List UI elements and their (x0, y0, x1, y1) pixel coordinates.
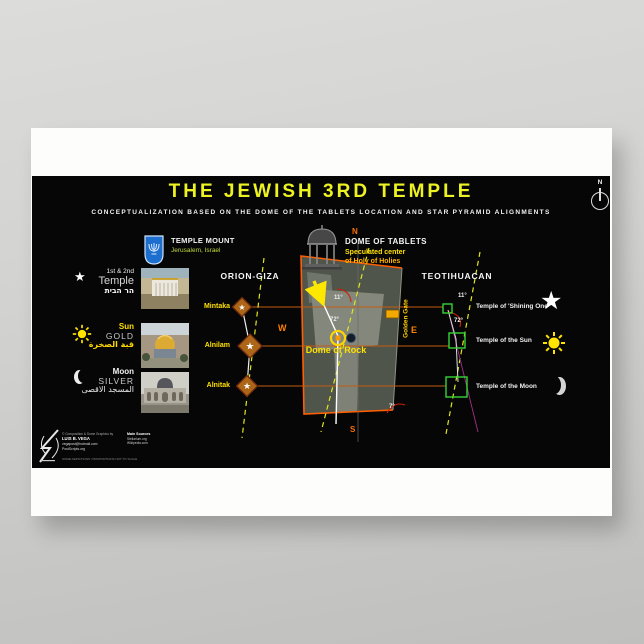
star-label-mintaka: Mintaka (190, 303, 230, 311)
compass-north-label: N (592, 179, 608, 186)
temple-of-moon-label: Temple of the Moon (476, 383, 537, 390)
credits-block: © Composition & Some Graphics by LUIS B.… (62, 432, 113, 451)
mockup-background: ★ ★ ★ (0, 0, 644, 644)
poster-title: THE JEWISH 3RD TEMPLE (32, 182, 610, 203)
poster-panel: ★ ★ ★ (32, 176, 610, 468)
angle-7-label: 7° (389, 404, 395, 411)
moon-icon (548, 376, 561, 394)
dome-of-tablets-title: DOME OF TABLETS (345, 238, 427, 247)
sources-block: Main Sources Stellarium.org Wikipedia.co… (127, 432, 150, 445)
dome-of-tablets-sub2: of Holy of Holies (345, 258, 400, 266)
teo-angle-11-label: 11° (458, 293, 467, 300)
south-label: S (350, 426, 355, 435)
star-icon: ★ (246, 342, 255, 353)
angle-11-label: 11° (334, 295, 343, 302)
al-aqsa-photo (141, 372, 189, 413)
golden-gate-marker (386, 310, 399, 318)
credits-site: PostScripts.org (62, 447, 113, 452)
star-label-alnilam: Alnilam (190, 342, 230, 350)
star-label-alnitak: Alnitak (190, 382, 230, 390)
dome-of-rock-label: Dome of Rock (290, 346, 382, 356)
sun-icon (542, 331, 566, 355)
dome-of-tablets-sub1: Speculated center (345, 249, 405, 257)
temple-model-photo (141, 268, 189, 309)
star-icon: ★ (540, 288, 562, 316)
orion-giza-title: ORION-GIZA (207, 272, 293, 281)
east-label: E (411, 326, 417, 336)
north-label: N (352, 228, 358, 237)
magenta-line (448, 310, 478, 432)
legend-row-moon: Moon SILVER المسجد الاقصى (68, 368, 134, 395)
temple-mount-title: TEMPLE MOUNT (171, 237, 235, 245)
temple-mount-subtitle: Jerusalem, Israel (171, 247, 221, 254)
west-label: W (278, 324, 287, 334)
golden-gate-label: Golden Gate (402, 291, 409, 347)
legend-row-temple: 1st & 2nd Temple הר הבית (68, 268, 134, 295)
dome-of-chain-marker (347, 334, 356, 343)
star-icon: ★ (243, 382, 251, 392)
israel-emblem-icon (144, 235, 164, 265)
source-item: Wikipedia.com (127, 441, 150, 445)
poster-subtitle: CONCEPTUALIZATION BASED ON THE DOME OF T… (32, 209, 610, 216)
compass-needle (599, 188, 601, 201)
legend-line-hebrew: הר הבית (68, 287, 134, 295)
teo-angle-72-label: 72° (454, 318, 463, 325)
dome-of-rock-photo (141, 323, 189, 368)
temple-shining-one-label: Temple of 'Shining One' (476, 303, 549, 310)
shining-one-square (443, 304, 452, 313)
legend-row-sun: Sun GOLD قبة الصخرة (68, 323, 134, 350)
poster: ★ ★ ★ (31, 128, 612, 516)
legend-line: 1st & 2nd (68, 268, 134, 275)
legend-line-arabic: قبة الصخرة (68, 341, 134, 350)
temple-of-sun-label: Temple of the Sun (476, 337, 532, 344)
star-icon: ★ (238, 303, 245, 312)
teotihuacan-title: TEOTIHUACAN (414, 272, 500, 281)
postscripts-logo (40, 430, 58, 462)
angle-72-label: 72° (330, 317, 339, 324)
credits-note: SOME DEPICTIONS / PROPORTIONS NOT TO SCA… (62, 458, 137, 461)
legend-line-arabic: المسجد الاقصى (68, 386, 134, 395)
